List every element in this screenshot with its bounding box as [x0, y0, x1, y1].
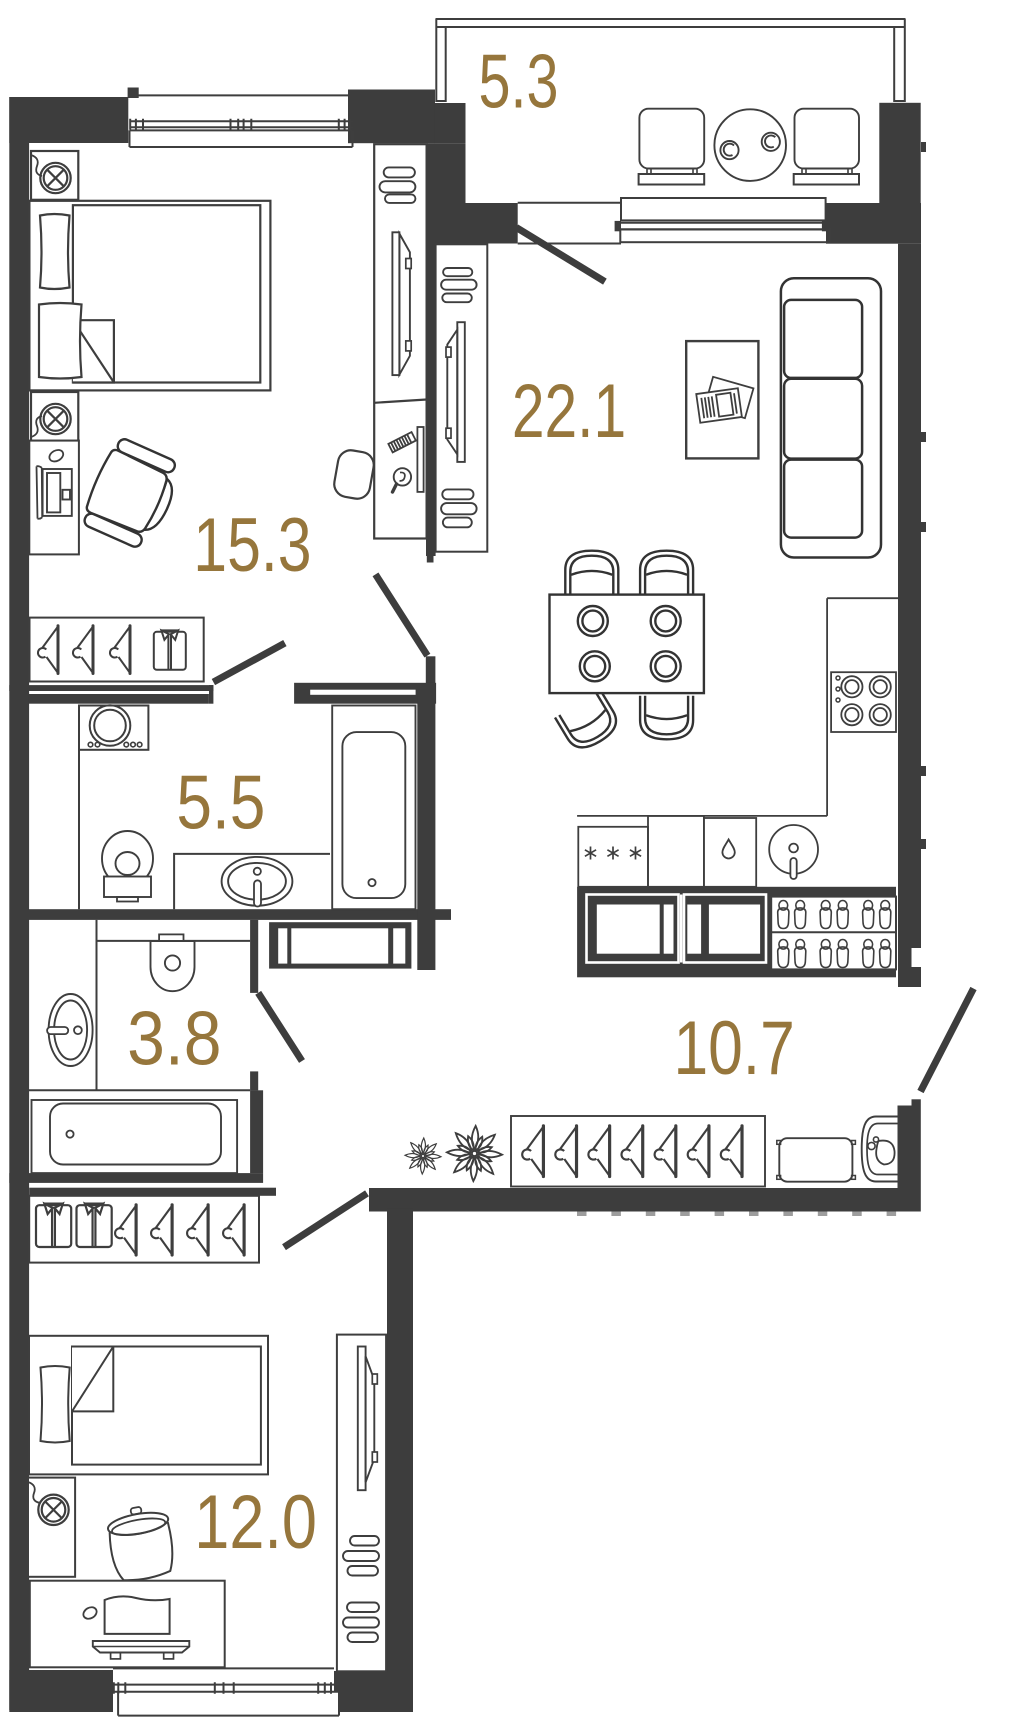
svg-text:3.8: 3.8 [127, 997, 221, 1082]
svg-text:10.7: 10.7 [673, 1005, 794, 1091]
svg-text:15.3: 15.3 [193, 501, 311, 587]
svg-text:5.5: 5.5 [176, 759, 265, 845]
svg-text:12.0: 12.0 [194, 1479, 317, 1564]
svg-text:22.1: 22.1 [512, 368, 626, 453]
svg-text:5.3: 5.3 [479, 40, 559, 125]
